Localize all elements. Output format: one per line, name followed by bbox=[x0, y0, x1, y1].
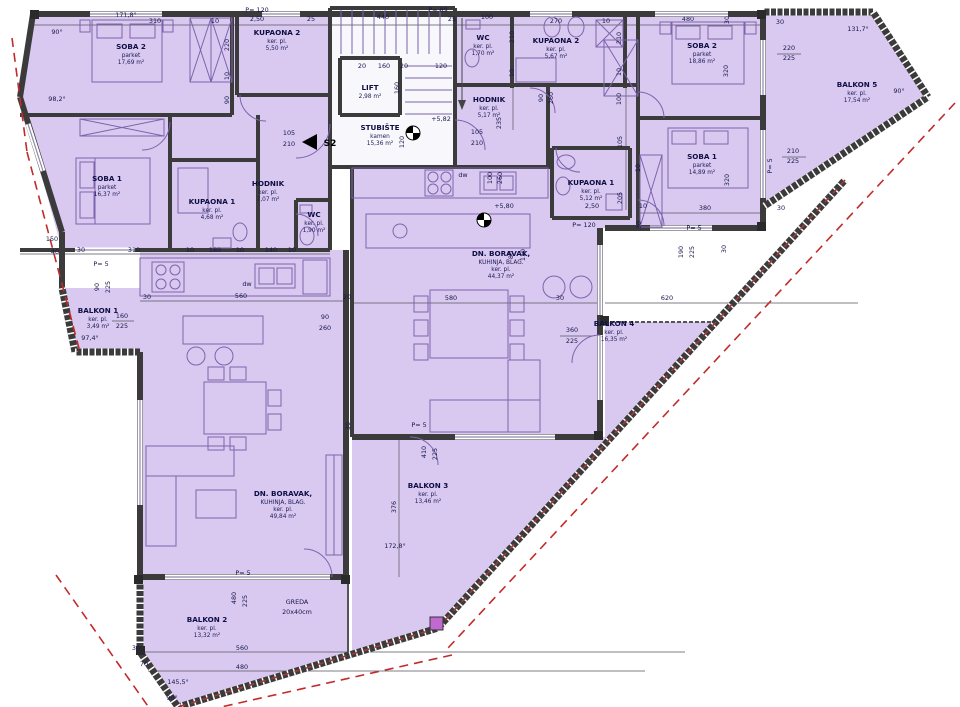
room-label-left-soba1-l2: 16,37 m² bbox=[94, 191, 120, 198]
dim-label-34: 120 bbox=[398, 136, 406, 148]
room-label-right-hodnik-l1: ker. pl. bbox=[479, 106, 499, 112]
room-label-right-kupaona2: KUPAONA 2 bbox=[533, 36, 580, 45]
room-label-right-kupaona1-l1: ker. pl. bbox=[581, 189, 601, 195]
dim-label-26: 90 bbox=[93, 283, 101, 291]
dim-label-33: 160 bbox=[393, 82, 401, 94]
dim-label-74: 620 bbox=[661, 294, 673, 302]
room-label-left-kupaona1-l1: ker. pl. bbox=[202, 208, 222, 214]
room-label-balkon5-l1: ker. pl. bbox=[847, 91, 867, 97]
room-label-right-soba1-l1: parket bbox=[693, 163, 712, 169]
dim-label-96: 410 bbox=[420, 446, 428, 458]
room-label-balkon4-l2: 16,35 m² bbox=[601, 336, 627, 343]
dim-label-52: 10 bbox=[639, 202, 647, 210]
room-label-balkon2-l2: 13,32 m² bbox=[194, 632, 220, 639]
dim-label-68: 100 bbox=[486, 172, 494, 184]
dim-label-14: 30 bbox=[723, 16, 731, 24]
dim-label-82: 140 bbox=[265, 246, 277, 254]
dim-label-64: 30 bbox=[635, 221, 643, 229]
dim-label-48: 100 bbox=[615, 93, 623, 105]
dim-label-9: 25 bbox=[448, 15, 456, 23]
room-label-balkon5-l2: 17,54 m² bbox=[844, 97, 870, 104]
dim-label-81: 10 bbox=[236, 246, 244, 254]
dim-label-11: 270 bbox=[550, 17, 562, 25]
room-label-left-soba1: SOBA 1 bbox=[92, 174, 122, 183]
dim-label-24: 150 bbox=[46, 235, 58, 243]
dim-label-49: 320 bbox=[722, 65, 730, 77]
room-label-left-kupaona2-l1: ker. pl. bbox=[267, 39, 287, 45]
room-label-right-kupaona2-l2: 5,67 m² bbox=[545, 53, 568, 60]
dim-label-103: GREDA bbox=[286, 598, 309, 606]
room-label-left-boravak-l1: KUHINJA, BLAG. bbox=[260, 500, 305, 506]
dim-label-61: 225 bbox=[688, 246, 696, 258]
dim-label-5: 2,50 bbox=[250, 15, 264, 23]
room-label-right-soba2: SOBA 2 bbox=[687, 41, 717, 50]
dim-label-37: +5,82 bbox=[431, 115, 451, 123]
dim-label-56: 210 bbox=[787, 147, 799, 155]
floor-plan-drawing: SOBA 2parket17,69 m²KUPAONA 2ker. pl.5,5… bbox=[0, 0, 960, 707]
dim-label-17: 225 bbox=[783, 54, 795, 62]
room-label-right-boravak-l1: KUHINJA, BLAG. bbox=[478, 260, 523, 266]
room-label-right-wc-l1: ker. pl. bbox=[473, 44, 493, 50]
dim-label-12: 10 bbox=[602, 17, 610, 25]
dim-label-69: 260 bbox=[496, 172, 504, 184]
room-label-left-soba2-l1: parket bbox=[122, 53, 141, 59]
room-label-left-wc-l2: 1,90 m² bbox=[303, 227, 326, 234]
dim-label-63: 10 bbox=[634, 164, 642, 172]
dim-label-30: 160 bbox=[378, 62, 390, 70]
dim-label-75: 360 bbox=[566, 326, 578, 334]
room-label-left-hodnik: HODNIK bbox=[252, 179, 285, 188]
dim-label-43: 235 bbox=[495, 117, 503, 129]
dim-label-58: P= 5 bbox=[766, 158, 774, 173]
dim-label-38: S2 bbox=[324, 139, 337, 149]
dim-label-45: 260 bbox=[547, 92, 555, 104]
dim-label-70: 80 bbox=[507, 251, 515, 259]
dim-label-87: 20 bbox=[343, 293, 351, 301]
room-label-right-boravak-l3: 44,37 m² bbox=[488, 273, 514, 280]
room-label-right-soba2-l2: 18,86 m² bbox=[689, 58, 715, 65]
dim-label-4: P= 120 bbox=[245, 6, 268, 14]
dim-label-71: 110 bbox=[519, 249, 527, 261]
dim-label-55: 30 bbox=[777, 204, 785, 212]
dim-label-50: 105 bbox=[616, 136, 624, 148]
dim-label-93: dw bbox=[458, 171, 467, 179]
dim-label-73: 30 bbox=[556, 294, 564, 302]
dim-label-84: P= 5 bbox=[93, 260, 108, 268]
dim-label-85: 30 bbox=[143, 293, 151, 301]
dim-label-23: 98,2° bbox=[48, 95, 65, 103]
dim-label-83: 10 bbox=[288, 246, 296, 254]
dim-label-42: 10 bbox=[508, 69, 516, 77]
dim-label-25: 40 bbox=[51, 248, 59, 256]
dim-label-35: 105 bbox=[283, 129, 295, 137]
dim-label-98: 376 bbox=[390, 501, 398, 513]
room-label-balkon2: BALKON 2 bbox=[187, 615, 228, 624]
room-label-right-soba2-l1: parket bbox=[693, 52, 712, 58]
room-label-balkon4-l1: ker. pl. bbox=[604, 330, 624, 336]
dim-label-6: 25 bbox=[307, 15, 315, 23]
dim-label-104: 20x40cm bbox=[282, 608, 312, 616]
dim-label-76: 225 bbox=[566, 337, 578, 345]
room-right-living-floor bbox=[352, 167, 600, 437]
room-label-right-hodnik: HODNIK bbox=[473, 95, 506, 104]
floor-plan-page: SOBA 2parket17,69 m²KUPAONA 2ker. pl.5,5… bbox=[0, 0, 960, 707]
room-label-balkon4: BALKON 4 bbox=[594, 319, 635, 328]
room-label-left-wc-l1: ker. pl. bbox=[304, 221, 324, 227]
room-label-left-kupaona2-l2: 5,50 m² bbox=[266, 45, 289, 52]
dim-label-41: 210 bbox=[508, 31, 516, 43]
dim-label-95: P= 5 bbox=[411, 421, 426, 429]
room-label-balkon1: BALKON 1 bbox=[78, 306, 119, 315]
dim-label-16: 220 bbox=[783, 44, 795, 52]
dim-label-72: 580 bbox=[445, 294, 457, 302]
dim-label-62: 30 bbox=[720, 245, 728, 253]
dim-label-21: 10 bbox=[223, 72, 231, 80]
dim-label-101: 225 bbox=[241, 595, 249, 607]
room-label-left-kupaona1-l2: 4,68 m² bbox=[201, 214, 224, 221]
room-label-right-soba1: SOBA 1 bbox=[687, 152, 717, 161]
dim-label-8: P= 89 bbox=[428, 6, 447, 14]
room-label-left-wc: WC bbox=[307, 210, 320, 219]
room-label-right-boravak-l2: ker. pl. bbox=[491, 267, 511, 273]
room-label-right-wc: WC bbox=[476, 33, 489, 42]
room-label-right-kupaona1: KUPAONA 1 bbox=[568, 178, 615, 187]
dim-label-92: dw bbox=[242, 280, 251, 288]
dim-label-77: 30 bbox=[77, 246, 85, 254]
dim-label-107: 70 bbox=[140, 660, 148, 668]
dim-label-102: P= 5 bbox=[235, 569, 250, 577]
dim-label-90: 160 bbox=[116, 312, 128, 320]
dim-label-60: 190 bbox=[677, 246, 685, 258]
room-label-left-boravak-l3: 49,84 m² bbox=[270, 513, 296, 520]
dim-label-40: 210 bbox=[471, 139, 483, 147]
dim-label-20: 220 bbox=[223, 39, 231, 51]
dim-label-67: +5,80 bbox=[494, 202, 514, 210]
dim-label-32: 120 bbox=[435, 62, 447, 70]
room-label-right-soba1-l2: 14,89 m² bbox=[689, 169, 715, 176]
dim-label-10: 100 bbox=[481, 13, 493, 21]
dim-label-2: 310 bbox=[149, 17, 161, 25]
dim-label-27: 225 bbox=[104, 281, 112, 293]
room-label-right-kupaona2-l1: ker. pl. bbox=[546, 47, 566, 53]
room-label-left-hodnik-l1: ker. pl. bbox=[258, 190, 278, 196]
beam-junction-post bbox=[430, 617, 443, 630]
room-label-right-wc-l2: 1,70 m² bbox=[472, 50, 495, 57]
dim-label-86: 560 bbox=[235, 292, 247, 300]
dim-label-100: 480 bbox=[230, 592, 238, 604]
room-label-balkon2-l1: ker. pl. bbox=[197, 626, 217, 632]
dim-label-1: 171,8° bbox=[115, 11, 137, 19]
dim-label-13: 480 bbox=[682, 15, 694, 23]
room-label-lift: LIFT bbox=[361, 83, 378, 92]
room-label-stubiste-l2: 15,36 m² bbox=[367, 140, 393, 147]
dim-label-94: 30 bbox=[344, 422, 352, 430]
dim-label-78: 310 bbox=[128, 246, 140, 254]
dim-label-108: 480 bbox=[236, 663, 248, 671]
dim-label-79: 10 bbox=[186, 246, 194, 254]
dim-label-110: 90° bbox=[166, 694, 177, 702]
dim-label-105: 30 bbox=[132, 644, 140, 652]
dim-label-80: 180 bbox=[209, 246, 221, 254]
dim-label-66: P= 120 bbox=[572, 221, 595, 229]
dim-label-31: 20 bbox=[400, 62, 408, 70]
room-label-stubiste: STUBIŠTE bbox=[360, 123, 399, 132]
room-label-balkon5: BALKON 5 bbox=[837, 80, 878, 89]
room-label-balkon1-l2: 3,49 m² bbox=[87, 323, 110, 330]
dim-label-47: 10 bbox=[615, 68, 623, 76]
dim-label-99: 172,8° bbox=[384, 542, 406, 550]
level-symbol-living bbox=[477, 213, 491, 227]
dim-label-15: 30 bbox=[776, 18, 784, 26]
dim-label-53: 380 bbox=[699, 204, 711, 212]
dim-label-0: 90° bbox=[51, 28, 62, 36]
dim-label-28: 97,4° bbox=[81, 334, 98, 342]
room-label-balkon3-l2: 13,46 m² bbox=[415, 498, 441, 505]
room-label-left-kupaona1: KUPAONA 1 bbox=[189, 197, 236, 206]
dim-label-44: 90 bbox=[537, 94, 545, 102]
room-label-left-boravak: DN. BORAVAK, bbox=[254, 489, 312, 498]
dim-label-22: 90 bbox=[223, 96, 231, 104]
room-label-left-hodnik-l2: 7,07 m² bbox=[257, 196, 280, 203]
room-label-lift-l1: 2,98 m² bbox=[359, 93, 382, 100]
dim-label-65: 2,50 bbox=[585, 202, 599, 210]
dim-label-36: 210 bbox=[283, 140, 295, 148]
room-label-balkon1-l1: ker. pl. bbox=[88, 317, 108, 323]
room-label-left-boravak-l2: ker. pl. bbox=[273, 507, 293, 513]
room-label-balkon3-l1: ker. pl. bbox=[418, 492, 438, 498]
dim-label-54: 320 bbox=[723, 174, 731, 186]
room-label-left-kupaona2: KUPAONA 2 bbox=[254, 28, 301, 37]
room-label-left-soba1-l1: parket bbox=[98, 185, 117, 191]
dim-label-89: 260 bbox=[319, 324, 331, 332]
dim-label-109: 145,5° bbox=[167, 678, 189, 686]
room-label-stubiste-l1: kamen bbox=[370, 134, 390, 140]
dim-label-88: 90 bbox=[321, 313, 329, 321]
dim-label-29: 20 bbox=[358, 62, 366, 70]
dim-label-46: 210 bbox=[615, 32, 623, 44]
dim-label-97: 225 bbox=[431, 448, 439, 460]
level-symbol-core bbox=[406, 126, 420, 140]
dim-label-106: 560 bbox=[236, 644, 248, 652]
dim-label-7: 440 bbox=[377, 13, 389, 21]
dim-label-51: 205 bbox=[616, 192, 624, 204]
dim-label-57: 225 bbox=[787, 157, 799, 165]
dim-label-59: P= 5 bbox=[686, 224, 701, 232]
dim-label-91: 225 bbox=[116, 322, 128, 330]
room-label-balkon3: BALKON 3 bbox=[408, 481, 449, 490]
dim-label-3: 10 bbox=[211, 17, 219, 25]
dim-label-18: 131,7° bbox=[847, 25, 869, 33]
room-label-right-kupaona1-l2: 5,12 m² bbox=[580, 195, 603, 202]
dim-label-19: 90° bbox=[893, 87, 904, 95]
room-label-left-soba2-l2: 17,69 m² bbox=[118, 59, 144, 66]
dim-label-39: 105 bbox=[471, 128, 483, 136]
room-label-left-soba2: SOBA 2 bbox=[116, 42, 146, 51]
